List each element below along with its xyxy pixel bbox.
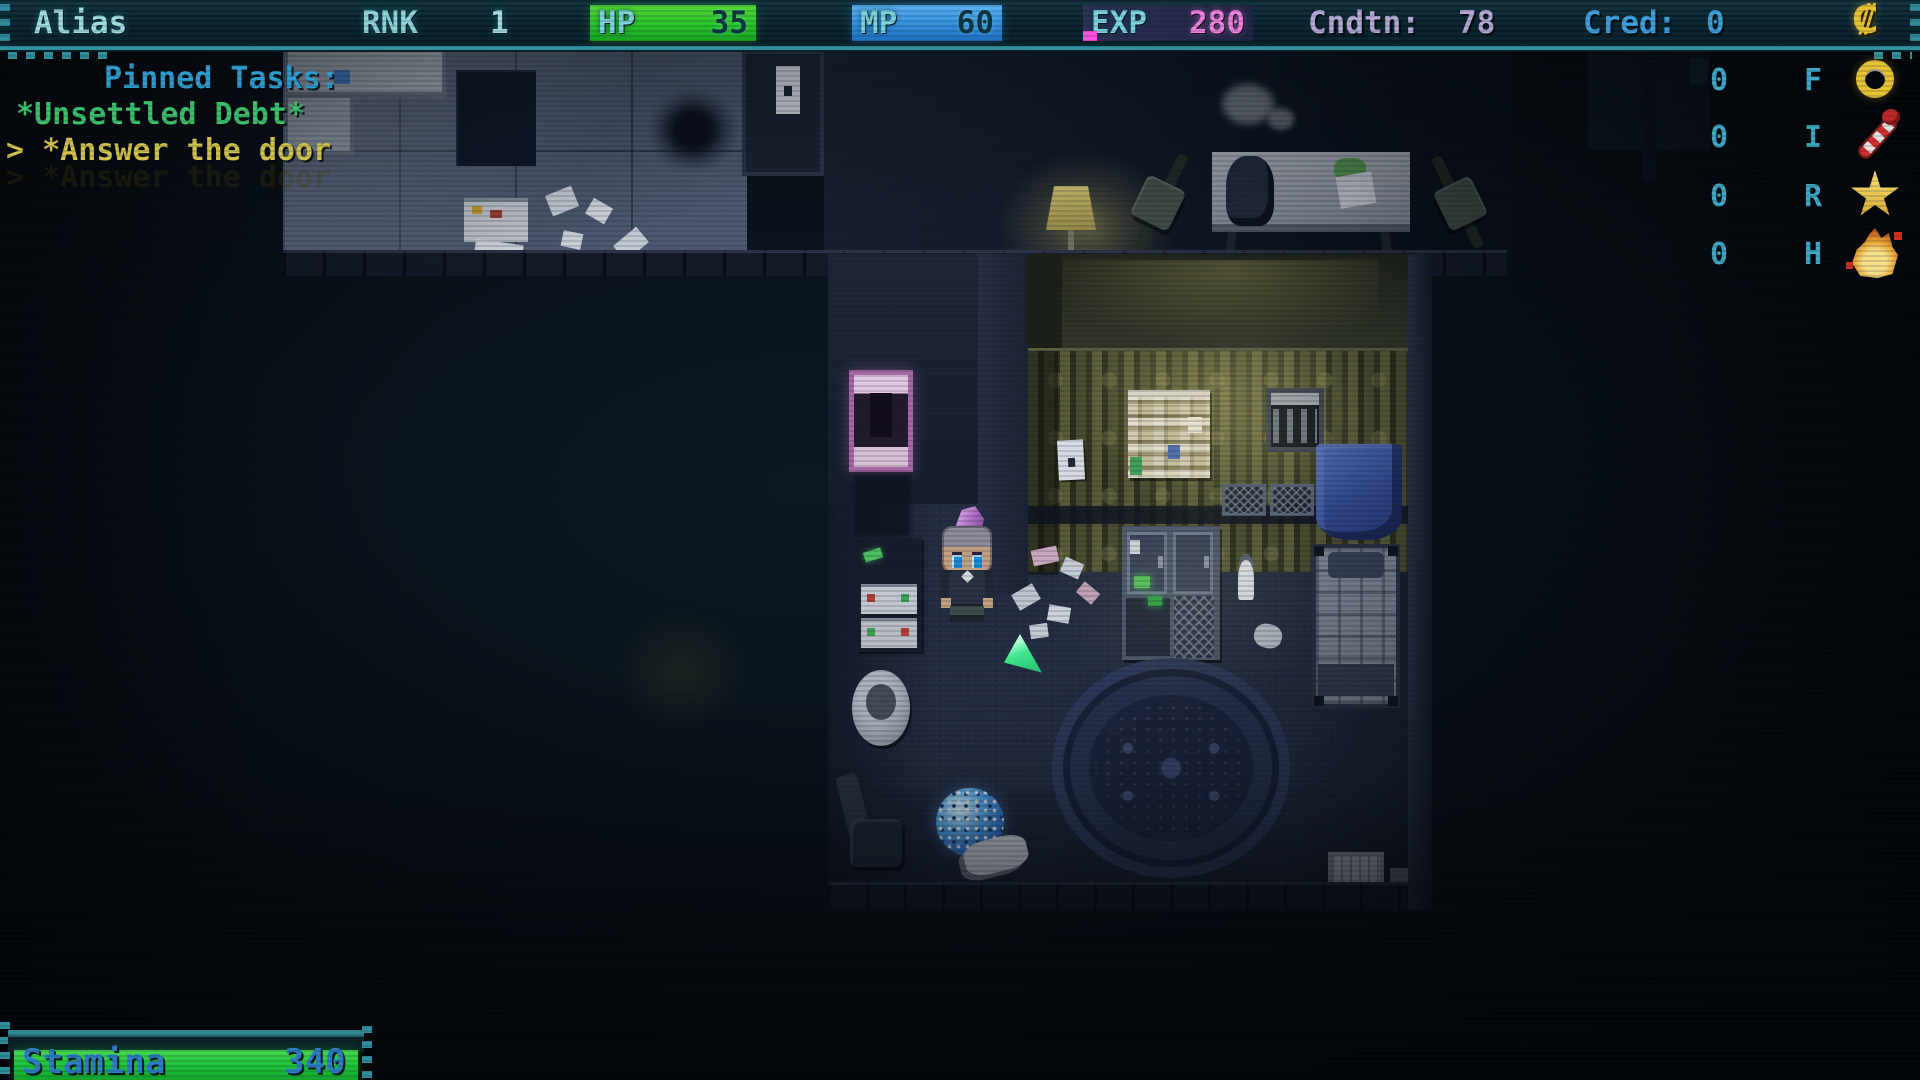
counter-value: 0 xyxy=(1710,238,1728,271)
pinned-tasks-title: Pinned Tasks: xyxy=(104,62,339,95)
counter-letter: R xyxy=(1804,180,1822,213)
mp-label: MP xyxy=(860,6,897,40)
mp-value: 60 xyxy=(957,6,994,40)
stamina-panel: Stamina 340 xyxy=(0,1020,390,1080)
star-icon xyxy=(1850,170,1900,220)
flame-icon xyxy=(1852,228,1898,278)
rank-label: RNK xyxy=(362,6,418,40)
counter-value: 0 xyxy=(1710,121,1728,154)
counter-value: 0 xyxy=(1710,64,1728,97)
top-status-bar: Alias RNK 1 HP 35 MP 60 EXP 280 Cndtn: 7… xyxy=(0,0,1920,44)
counter-value: 0 xyxy=(1710,180,1728,213)
credits-value: 0 xyxy=(1706,6,1725,40)
pinned-task-item-current[interactable]: > *Answer the door xyxy=(6,134,331,167)
counter-letter: H xyxy=(1804,238,1822,271)
game-screen: Alias RNK 1 HP 35 MP 60 EXP 280 Cndtn: 7… xyxy=(0,0,1920,1080)
condition-label: Cndtn: xyxy=(1308,6,1420,40)
exp-bar: EXP 280 xyxy=(1083,5,1253,41)
pinned-task-item[interactable]: *Unsettled Debt* xyxy=(16,98,305,131)
pinned-tasks-panel: Pinned Tasks: *Unsettled Debt* > *Answer… xyxy=(0,58,380,178)
wand-tip xyxy=(1882,109,1900,125)
counter-row-f: 0 F xyxy=(1690,58,1912,106)
alias-label: Alias xyxy=(34,6,127,40)
counter-row-r: 0 R xyxy=(1690,170,1912,222)
stamina-frame-line xyxy=(8,1030,364,1037)
topbar-divider xyxy=(0,44,1920,52)
rank-value: 1 xyxy=(490,6,509,40)
ring-icon xyxy=(1856,60,1894,98)
counter-letter: I xyxy=(1804,121,1822,154)
counter-row-i: 0 I xyxy=(1690,115,1912,163)
exp-progress-chip xyxy=(1083,31,1097,41)
flame-spark xyxy=(1846,262,1853,269)
exp-value: 280 xyxy=(1189,6,1245,40)
credits-label: Cred: xyxy=(1583,6,1676,40)
hp-value: 35 xyxy=(711,6,748,40)
hp-label: HP xyxy=(598,6,635,40)
frame-teeth-top-left xyxy=(0,4,10,42)
currency-icon: ₡ xyxy=(1852,0,1878,42)
frame-teeth-top-right xyxy=(1910,4,1920,42)
stamina-value: 340 xyxy=(284,1044,345,1080)
counter-row-h: 0 H xyxy=(1690,228,1912,280)
wand-icon xyxy=(1854,111,1902,167)
hp-bar: HP 35 xyxy=(590,5,756,41)
stamina-label: Stamina xyxy=(22,1044,165,1080)
counters-panel: 0 F 0 I 0 R 0 H xyxy=(1690,58,1912,288)
flame-spark xyxy=(1894,232,1902,240)
hud-layer: Alias RNK 1 HP 35 MP 60 EXP 280 Cndtn: 7… xyxy=(0,0,1920,1080)
counter-letter: F xyxy=(1804,64,1822,97)
stamina-teeth-right xyxy=(362,1026,372,1080)
mp-bar: MP 60 xyxy=(852,5,1002,41)
condition-value: 78 xyxy=(1458,6,1495,40)
exp-label: EXP xyxy=(1091,6,1147,40)
